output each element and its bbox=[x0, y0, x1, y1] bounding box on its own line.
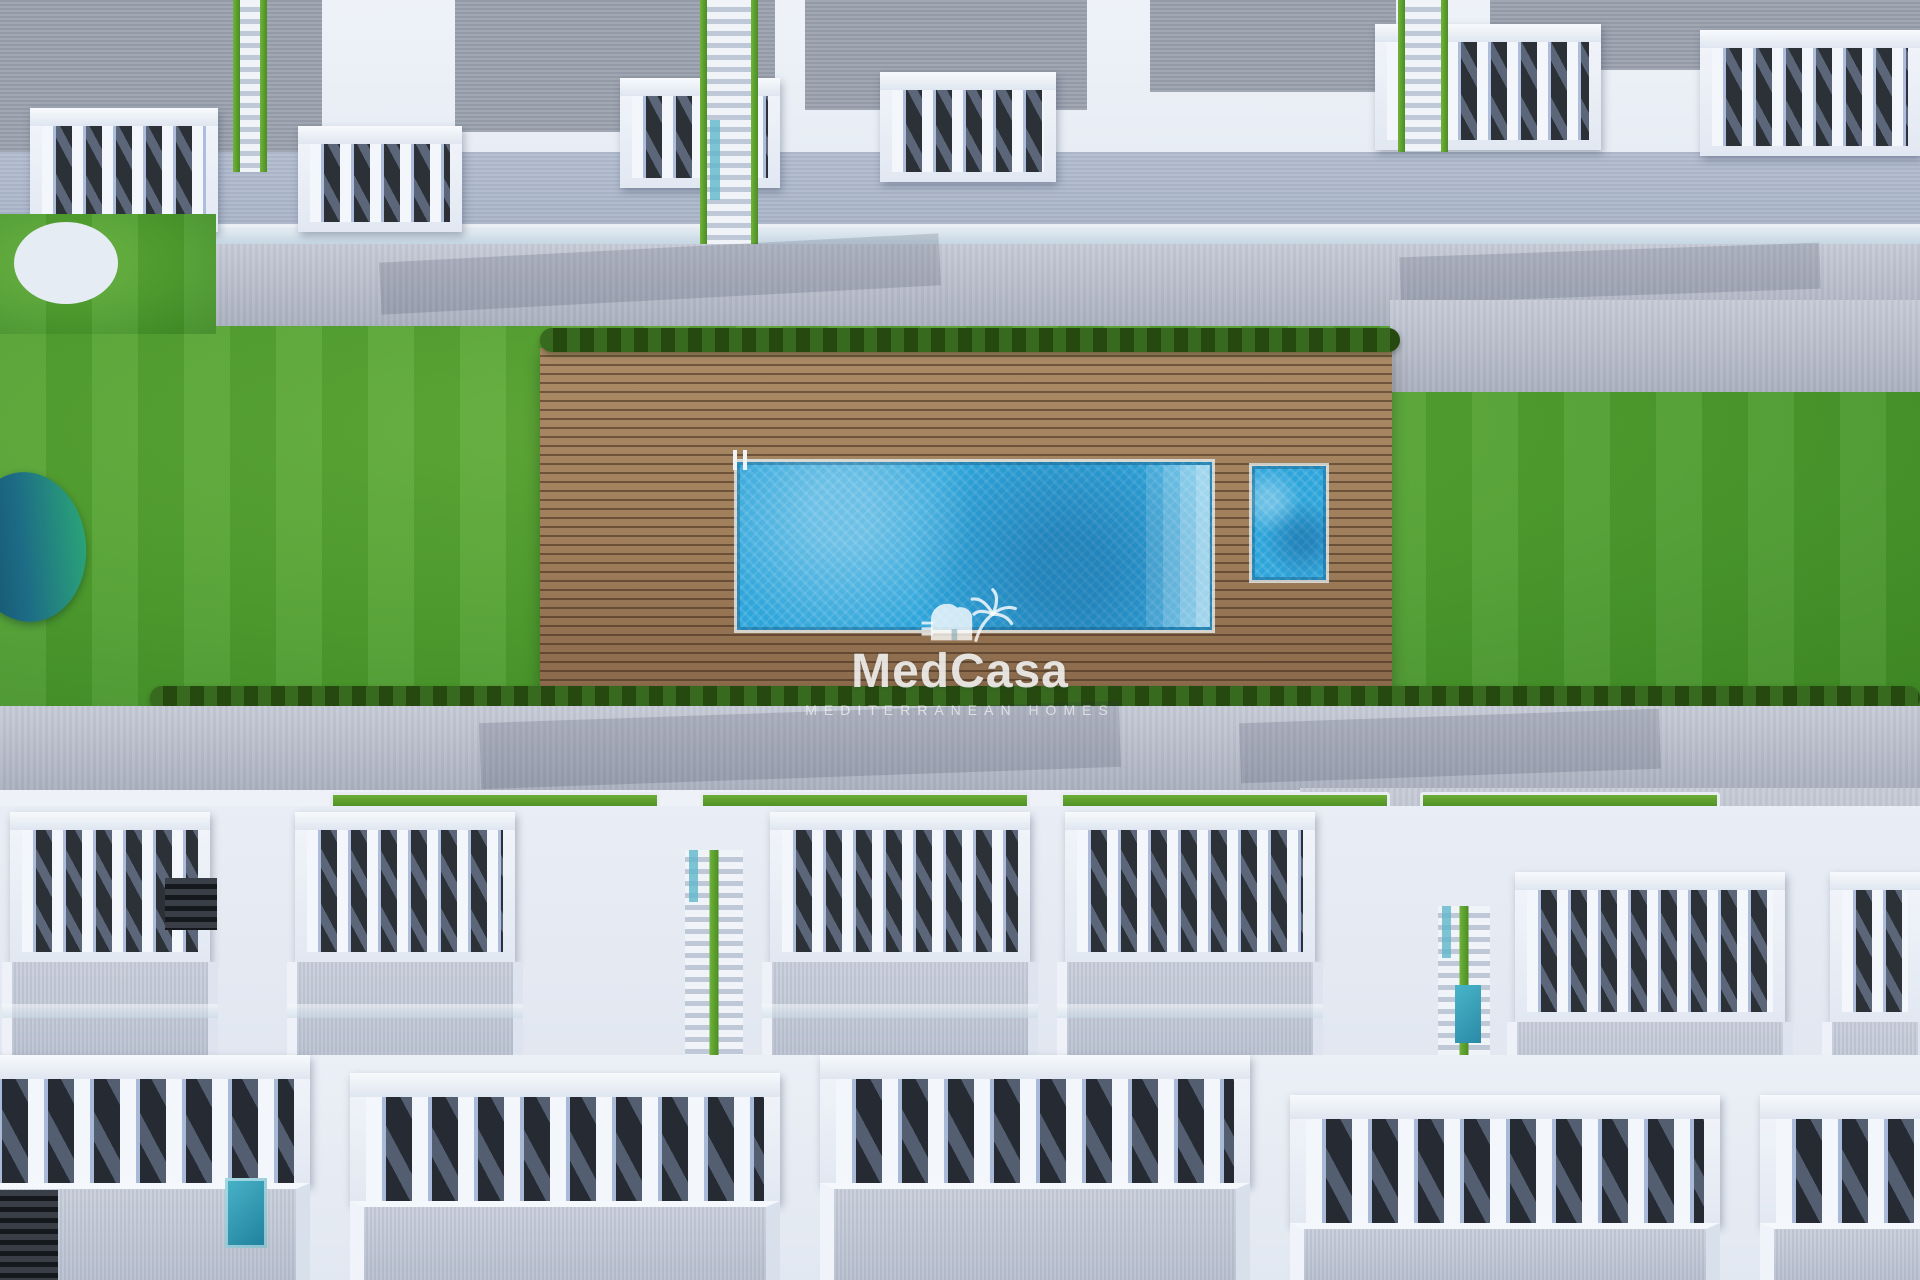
townhouse-balcony bbox=[1830, 872, 1920, 1022]
pool-ladder bbox=[733, 450, 737, 470]
dark-stair bbox=[0, 1190, 58, 1280]
stair-green-bank bbox=[1398, 0, 1405, 152]
townhouse-balcony bbox=[770, 812, 1030, 962]
plunge-pool bbox=[225, 1178, 267, 1248]
glass-panel bbox=[689, 850, 698, 902]
stair-green-bank bbox=[751, 0, 758, 244]
glass-panel bbox=[710, 120, 720, 200]
townhouse-balcony-front bbox=[350, 1073, 780, 1203]
main-swimming-pool bbox=[737, 462, 1212, 630]
townhouse-balcony-front bbox=[820, 1055, 1250, 1185]
hedge-top bbox=[540, 328, 1400, 352]
front-terrace bbox=[820, 1183, 1250, 1280]
terrace-glass bbox=[762, 1004, 1038, 1018]
right-promenade bbox=[1390, 300, 1920, 392]
stair-green-bank bbox=[1441, 0, 1448, 152]
front-terrace bbox=[1760, 1223, 1920, 1280]
top-building-row bbox=[0, 0, 1920, 250]
stair-green-bank bbox=[233, 0, 240, 172]
small-stair bbox=[165, 878, 217, 930]
round-patio bbox=[14, 222, 118, 304]
lower-promenade bbox=[0, 706, 1920, 790]
glass-panel bbox=[1442, 906, 1451, 958]
townhouse-balcony-front bbox=[1760, 1095, 1920, 1225]
aerial-render: MedCasa MEDITERRANEAN HOMES bbox=[0, 0, 1920, 1280]
townhouse-row-lower bbox=[0, 1055, 1920, 1280]
townhouse-balcony-front bbox=[0, 1055, 310, 1185]
townhouse-balcony bbox=[295, 812, 515, 962]
glass-panel bbox=[1455, 985, 1481, 1043]
townhouse-balcony bbox=[1515, 872, 1785, 1022]
terrace-glass bbox=[1057, 1004, 1323, 1018]
stair-green-bank bbox=[700, 0, 707, 244]
kids-pool bbox=[1252, 466, 1326, 580]
terrace-glass bbox=[287, 1004, 523, 1018]
stair-green-bank bbox=[260, 0, 267, 172]
staircase bbox=[1398, 0, 1448, 152]
townhouse-balcony-front bbox=[1290, 1095, 1720, 1225]
terrace-glass bbox=[2, 1004, 218, 1018]
front-terrace bbox=[350, 1201, 780, 1280]
townhouse-balcony bbox=[1065, 812, 1315, 962]
front-terrace bbox=[1290, 1223, 1720, 1280]
staircase bbox=[700, 0, 758, 244]
staircase bbox=[233, 0, 267, 172]
